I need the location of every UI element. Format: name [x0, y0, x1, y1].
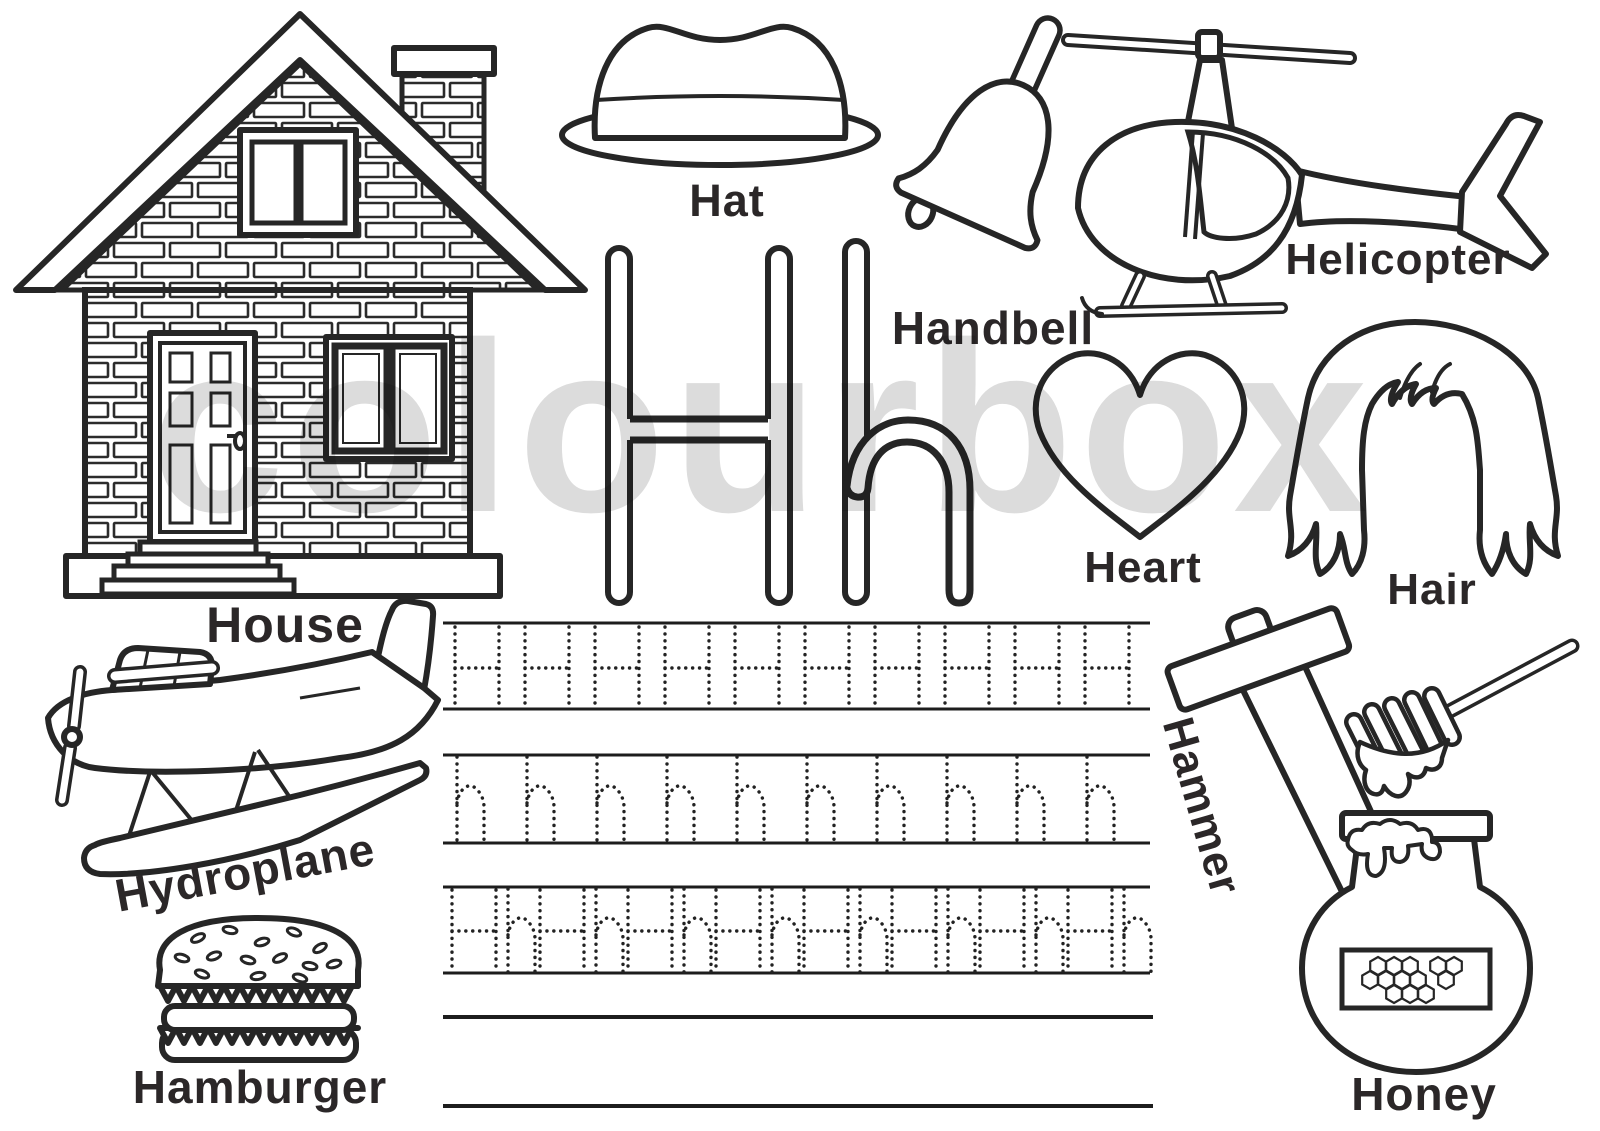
house-icon [8, 6, 594, 602]
trace-row-lowercase [443, 755, 1150, 843]
honey-jar-icon [1280, 808, 1570, 1078]
trace-row-uppercase [443, 623, 1150, 709]
heart-icon [1015, 340, 1265, 570]
trace-row-pairs [443, 887, 1151, 973]
letter-h-outline [845, 241, 970, 603]
honey-label: Honey [1351, 1067, 1497, 1121]
house-label: House [206, 596, 364, 654]
tracing-rows[interactable] [440, 615, 1155, 1120]
hat-icon [555, 10, 885, 175]
blank-writing-lines[interactable] [443, 1017, 1153, 1106]
letter-H-outline [608, 248, 790, 603]
heart-label: Heart [1084, 543, 1202, 593]
hat-label: Hat [689, 175, 765, 227]
hair-label: Hair [1387, 565, 1477, 615]
hamburger-label: Hamburger [133, 1060, 387, 1114]
hamburger-icon [140, 912, 380, 1070]
big-letters-Hh [600, 233, 1000, 613]
worksheet-page: House Hat Handbell Helicopter Heart Hair… [0, 0, 1600, 1131]
handbell-label: Handbell [892, 301, 1094, 355]
helicopter-label: Helicopter [1285, 235, 1510, 285]
honey-dipper-icon [1295, 635, 1580, 815]
